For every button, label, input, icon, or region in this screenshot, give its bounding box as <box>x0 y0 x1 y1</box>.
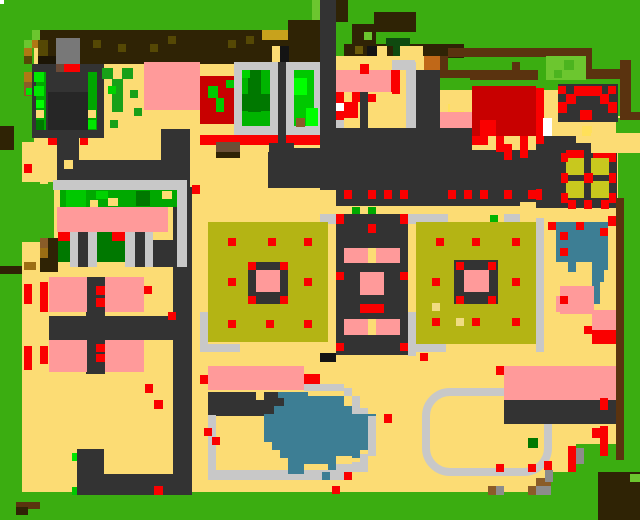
school-building-tile <box>57 207 168 232</box>
left-garden-tile <box>228 278 236 286</box>
hospital-quad-tile <box>96 344 105 352</box>
house-cluster-tile <box>344 102 358 118</box>
east-side-tile <box>608 216 616 226</box>
pond-area-tile <box>344 472 352 480</box>
school-building-tile <box>135 232 145 267</box>
roof-band-tile <box>584 69 622 79</box>
pond-area-tile <box>322 472 330 480</box>
town-hall-tile <box>400 272 408 280</box>
sand-lot-details-tile <box>544 461 552 470</box>
town-hall-tile <box>336 272 344 280</box>
roof-band-tile <box>512 62 520 72</box>
town-hall-tile <box>368 224 376 233</box>
flower-plaza-tile <box>591 181 609 198</box>
east-side-tile <box>496 366 504 375</box>
pond-area-tile <box>344 388 352 396</box>
red-dot-machine-tile <box>574 86 602 96</box>
pond-area-tile <box>272 442 368 450</box>
red-dot-machine-tile <box>566 94 576 104</box>
roof-band-tile <box>564 60 574 70</box>
roof-band-tile <box>38 40 48 56</box>
pond-area-tile <box>352 396 360 408</box>
east-side-tile <box>584 326 592 334</box>
school-building-tile <box>136 191 150 206</box>
museum-building-tile <box>48 138 57 145</box>
sand-lot-details-tile <box>528 438 538 448</box>
museum-building-tile <box>80 138 88 145</box>
museum-building-tile <box>56 64 64 72</box>
school-building-tile <box>162 191 172 199</box>
pond-area-tile <box>208 415 216 475</box>
museum-building-tile <box>34 72 44 82</box>
east-side-tile <box>576 222 584 230</box>
museum-building-tile <box>64 64 80 72</box>
town-hall-tile <box>320 353 336 362</box>
roof-band-tile <box>56 38 80 64</box>
museum-building-tile <box>88 110 96 118</box>
roof-band-tile <box>620 60 631 120</box>
vine-bushes-tile <box>112 101 123 112</box>
school-building-tile <box>48 238 58 258</box>
east-side-tile <box>568 446 576 472</box>
school-building-tile <box>58 241 70 262</box>
shops-and-greenhouses-tile <box>294 78 307 95</box>
town-hall-tile <box>360 304 384 313</box>
left-garden-tile <box>228 238 236 246</box>
hospital-quad-tile <box>24 164 32 173</box>
left-garden-tile <box>304 320 312 328</box>
town-hall-tile <box>336 343 344 351</box>
roof-band-tile <box>118 44 126 52</box>
house-cluster-tile <box>391 70 400 94</box>
left-garden-tile <box>200 344 240 352</box>
right-garden-tile <box>432 318 440 326</box>
school-building-tile <box>40 238 48 248</box>
right-garden-tile <box>432 303 440 311</box>
roof-band-tile <box>262 30 288 40</box>
sand-lot-details-tile <box>536 486 551 495</box>
right-garden-tile <box>512 278 520 286</box>
left-garden-tile <box>228 320 236 328</box>
right-garden-tile <box>512 238 520 246</box>
left-garden-tile <box>268 238 276 246</box>
red-barn-tile <box>496 136 504 144</box>
roof-band-tile <box>367 46 377 56</box>
town-hall-tile <box>336 214 344 224</box>
roof-band-tile <box>355 46 363 54</box>
sand-lot-details-tile <box>528 486 536 495</box>
shops-and-greenhouses-tile <box>296 118 305 127</box>
pond-area-tile <box>200 375 208 384</box>
grass-margins-tile <box>0 0 4 4</box>
red-barn-tile <box>480 120 496 136</box>
flower-plaza-tile <box>566 150 584 158</box>
roof-band-tile <box>620 112 640 120</box>
hospital-quad-tile <box>145 384 153 393</box>
sand-lot-details-tile <box>528 464 536 472</box>
street-dashes-tile <box>464 190 472 199</box>
roof-band-tile <box>288 20 320 32</box>
east-side-tile <box>548 222 556 230</box>
east-side-tile <box>630 474 640 482</box>
flower-plaza-tile <box>584 173 593 183</box>
grass-margins-tile <box>624 194 640 464</box>
east-side-tile <box>560 296 568 304</box>
roof-band-tile <box>93 40 101 48</box>
pond-area-tile <box>304 374 320 384</box>
street-dashes-tile <box>368 190 376 199</box>
red-barn-tile <box>543 118 552 136</box>
grass-margins-tile <box>0 182 54 242</box>
right-garden-tile <box>536 218 544 352</box>
right-garden-tile <box>472 318 480 326</box>
roof-band-tile <box>387 46 393 56</box>
right-garden-tile <box>488 296 496 304</box>
hospital-quad-tile <box>49 277 87 312</box>
grass-margins-tile <box>312 0 320 22</box>
grass-margins-tile <box>0 492 640 520</box>
pond-area-tile <box>368 416 376 456</box>
red-barn-tile <box>504 152 512 160</box>
shops-and-greenhouses-tile <box>242 94 270 111</box>
town-hall-tile <box>368 319 376 335</box>
pond-area-tile <box>332 486 340 494</box>
street-dashes-tile <box>528 190 536 199</box>
house-cluster-tile <box>450 94 464 111</box>
school-building-tile <box>88 232 97 267</box>
museum-building-tile <box>36 120 44 130</box>
right-garden-tile <box>464 270 489 292</box>
shops-and-greenhouses-tile <box>208 86 218 98</box>
roof-band-tile <box>0 126 14 150</box>
shops-and-greenhouses-tile <box>216 98 224 112</box>
roof-band-tile <box>24 56 32 64</box>
vine-bushes-tile <box>130 90 138 98</box>
grass-margins-tile <box>0 0 34 142</box>
school-building-tile <box>70 232 78 267</box>
flower-plaza-tile <box>591 158 609 175</box>
roof-band-tile <box>24 72 32 82</box>
hospital-quad-tile <box>49 339 87 372</box>
right-garden-tile <box>436 238 444 246</box>
street-dashes-tile <box>344 190 352 199</box>
school-building-tile <box>112 232 125 241</box>
house-cluster-tile <box>336 92 344 103</box>
roof-band-tile <box>38 56 56 64</box>
school-building-tile <box>125 232 135 267</box>
hospital-quad-tile <box>168 312 176 320</box>
roads-and-street-tile <box>64 160 73 169</box>
pond-area-tile <box>208 366 304 390</box>
pond-area-tile <box>384 414 392 423</box>
shops-and-greenhouses-tile <box>306 108 318 126</box>
flower-plaza-tile <box>561 173 568 183</box>
town-hall-tile <box>376 248 400 263</box>
shops-and-greenhouses-tile <box>242 70 250 78</box>
roof-band-tile <box>228 40 236 48</box>
flower-plaza-tile <box>561 153 568 162</box>
roof-band-tile <box>554 70 562 78</box>
house-cluster-tile <box>336 103 344 111</box>
pond-area-tile <box>336 456 352 464</box>
right-garden-tile <box>512 318 520 326</box>
house-cluster-tile <box>344 92 352 102</box>
school-building-tile <box>90 200 98 207</box>
school-building-tile <box>78 232 88 267</box>
roof-band-tile <box>246 36 254 44</box>
red-barn-tile <box>472 136 488 145</box>
hospital-quad-tile <box>105 277 144 312</box>
hospital-quad-tile <box>96 298 105 307</box>
left-garden-tile <box>248 296 256 304</box>
house-cluster-tile <box>360 92 368 128</box>
east-side-tile <box>568 262 576 272</box>
shops-and-greenhouses-tile <box>216 152 240 158</box>
vine-bushes-tile <box>102 68 113 79</box>
town-hall-tile <box>360 272 384 295</box>
school-building-tile <box>177 180 187 267</box>
school-building-tile <box>58 232 70 241</box>
museum-building-tile <box>34 86 44 96</box>
shops-and-greenhouses-tile <box>278 62 286 150</box>
red-barn-tile <box>520 136 528 158</box>
flower-plaza-tile <box>609 173 616 183</box>
left-garden-tile <box>304 278 312 286</box>
roof-band-tile <box>24 48 32 56</box>
shops-and-greenhouses-tile <box>144 62 200 110</box>
flower-plaza-tile <box>561 193 568 203</box>
east-side-tile <box>504 366 616 400</box>
town-hall-tile <box>368 248 376 263</box>
left-garden-tile <box>248 262 256 270</box>
pond-area-tile <box>360 454 368 464</box>
roof-band-tile <box>336 0 348 22</box>
street-dashes-tile <box>480 190 488 199</box>
museum-building-tile <box>88 120 96 129</box>
flower-plaza-tile <box>566 158 584 175</box>
house-cluster-tile <box>360 64 369 74</box>
hospital-quad-tile <box>105 339 144 372</box>
school-building-tile <box>153 240 177 267</box>
pond-area-tile <box>264 414 376 442</box>
red-dot-machine-tile <box>608 86 616 94</box>
left-garden-tile <box>256 270 280 292</box>
roads-and-street-tile <box>320 128 472 190</box>
house-cluster-tile <box>336 111 344 120</box>
pond-area-tile <box>304 384 344 391</box>
roof-band-tile <box>168 36 176 44</box>
red-dot-machine-tile <box>608 102 617 113</box>
hospital-quad-tile <box>24 284 32 304</box>
street-dashes-tile <box>192 185 200 194</box>
school-building-tile <box>108 198 118 206</box>
vine-bushes-tile <box>108 86 116 94</box>
pond-area-tile <box>288 464 304 474</box>
flower-plaza-tile <box>609 193 616 203</box>
sand-lot-details-tile <box>545 470 553 482</box>
school-building-tile <box>145 232 153 267</box>
east-side-tile <box>591 133 640 153</box>
east-side-tile <box>600 426 608 456</box>
flower-plaza-tile <box>601 200 609 209</box>
left-garden-tile <box>266 320 274 328</box>
flower-plaza-tile <box>566 181 584 198</box>
street-dashes-tile <box>504 190 512 199</box>
right-garden-tile <box>420 353 428 361</box>
red-dot-machine-tile <box>558 102 567 113</box>
right-garden-tile <box>456 296 464 304</box>
east-side-tile <box>592 268 604 282</box>
right-garden-tile <box>408 224 416 312</box>
museum-building-tile <box>48 92 88 130</box>
schoolyard-tile <box>154 486 163 495</box>
town-hall-tile <box>400 343 408 351</box>
right-garden-tile <box>416 344 446 352</box>
house-cluster-tile <box>416 70 440 128</box>
hospital-quad-tile <box>96 354 105 362</box>
right-garden-tile <box>408 312 416 356</box>
right-garden-tile <box>456 262 464 270</box>
flower-plaza-tile <box>609 153 616 162</box>
pond-area-tile <box>208 392 280 416</box>
right-garden-tile <box>456 318 464 326</box>
museum-building-tile <box>36 100 44 108</box>
east-side-tile <box>576 448 584 464</box>
house-cluster-tile <box>400 70 406 128</box>
sand-lot-details-tile <box>496 464 504 472</box>
hospital-quad-tile <box>96 286 105 295</box>
east-side-tile <box>592 310 616 332</box>
school-building-tile <box>40 178 48 184</box>
hospital-quad-tile <box>144 286 152 294</box>
village-map-canvas <box>0 0 640 520</box>
roads-and-street-tile <box>268 152 324 188</box>
pond-area-tile <box>212 437 220 445</box>
house-cluster-tile <box>406 62 416 128</box>
pond-area-tile <box>204 428 212 436</box>
hospital-quad-tile <box>154 400 163 409</box>
roof-band-tile <box>374 12 416 32</box>
shops-and-greenhouses-tile <box>216 142 240 152</box>
school-building-tile <box>53 180 187 190</box>
shops-and-greenhouses-tile <box>226 80 234 88</box>
town-hall-tile <box>400 214 408 224</box>
schoolyard-tile <box>77 449 104 495</box>
street-dashes-tile <box>400 190 408 199</box>
school-building-tile <box>40 258 58 272</box>
left-garden-tile <box>304 238 312 246</box>
schoolyard-tile <box>104 474 192 495</box>
pond-area-tile <box>256 392 264 400</box>
house-cluster-tile <box>440 78 470 90</box>
red-dot-machine-tile <box>558 86 566 94</box>
east-side-tile <box>616 198 624 460</box>
hospital-quad-tile <box>40 282 48 312</box>
left-garden-tile <box>280 296 288 304</box>
east-side-tile <box>600 398 608 410</box>
school-building-tile <box>96 191 108 199</box>
east-side-tile <box>560 232 568 240</box>
vine-bushes-tile <box>110 120 118 128</box>
house-cluster-tile <box>352 92 360 102</box>
red-barn-tile <box>496 144 512 152</box>
right-garden-tile <box>488 262 496 270</box>
house-cluster-tile <box>440 112 472 128</box>
east-side-tile <box>600 228 608 236</box>
east-side-tile <box>592 330 616 344</box>
roof-band-tile <box>364 32 372 40</box>
vine-bushes-tile <box>134 108 142 116</box>
flower-plaza-tile <box>568 200 576 209</box>
right-garden-tile <box>432 278 440 286</box>
museum-building-tile <box>36 110 44 118</box>
town-hall-tile <box>376 319 400 335</box>
east-side-tile <box>592 428 600 438</box>
east-side-tile <box>560 248 568 256</box>
right-garden-tile <box>472 238 480 246</box>
roads-and-street-tile <box>336 190 520 206</box>
street-dashes-tile <box>384 190 392 199</box>
house-cluster-tile <box>368 94 376 102</box>
roof-band-tile <box>150 44 158 52</box>
vine-bushes-tile <box>122 68 133 79</box>
sand-lot-details-tile <box>496 486 504 495</box>
red-dot-machine-tile <box>580 110 592 120</box>
hospital-quad-tile <box>24 346 32 370</box>
street-dashes-tile <box>448 190 456 199</box>
school-building-tile <box>66 190 86 207</box>
left-garden-tile <box>280 262 288 270</box>
school-building-tile <box>24 262 36 270</box>
roof-band-tile <box>32 30 40 40</box>
school-building-tile <box>0 266 22 274</box>
town-hall-tile <box>344 248 368 263</box>
sand-lot-details-tile <box>488 486 496 495</box>
hospital-quad-tile <box>40 346 48 364</box>
flower-plaza-tile <box>584 200 592 209</box>
flower-plaza-tile <box>536 189 542 200</box>
east-side-tile <box>16 507 28 515</box>
town-hall-tile <box>344 319 368 335</box>
